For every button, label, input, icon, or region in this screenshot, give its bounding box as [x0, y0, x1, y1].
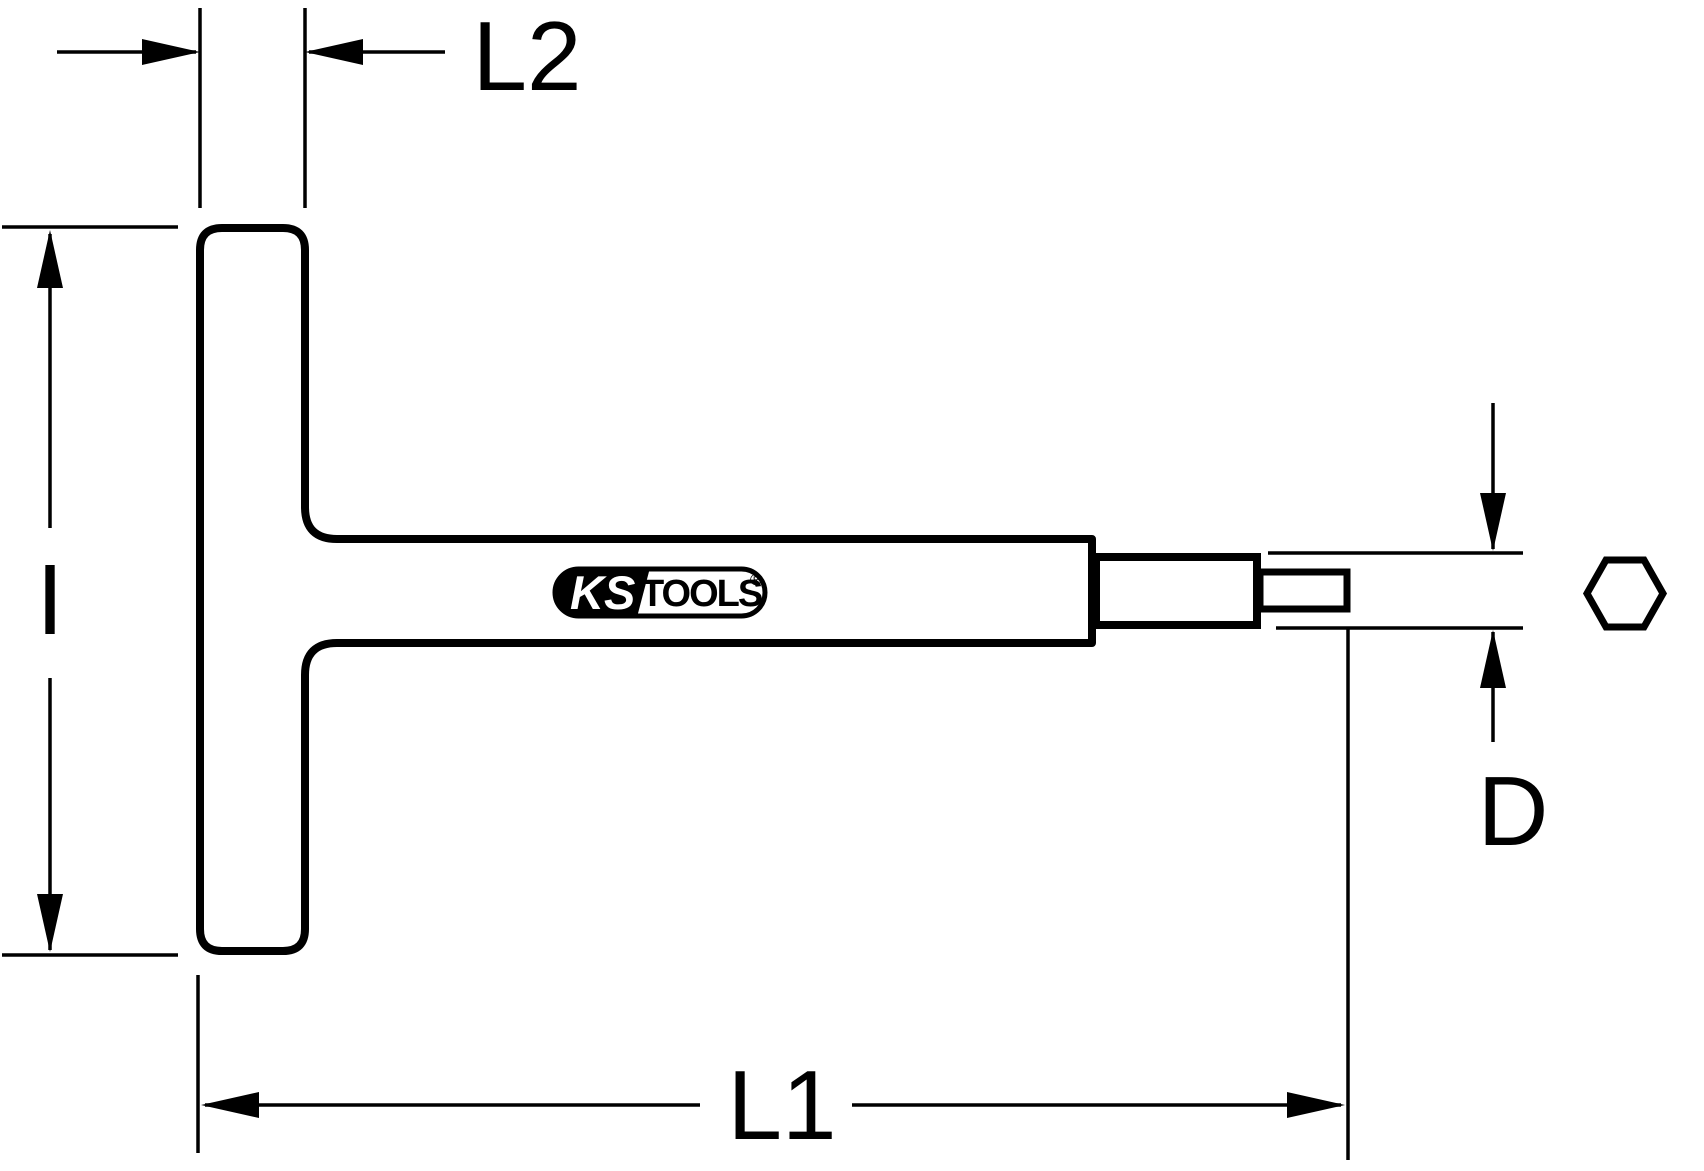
l1-arrowhead-right	[1287, 1092, 1345, 1118]
l2-arrowhead-right	[142, 39, 200, 65]
label-l1: L1	[727, 1050, 836, 1160]
wrench-sleeve-section	[1096, 557, 1257, 625]
dimension-i	[2, 227, 178, 955]
i-arrowhead-down	[37, 894, 63, 952]
technical-drawing-canvas: KS TOOLS ® L2 I	[0, 0, 1704, 1171]
l2-arrowhead-left	[305, 39, 363, 65]
ks-tools-logo: KS TOOLS ®	[550, 564, 765, 621]
label-i: I	[36, 544, 64, 656]
l1-arrowhead-left	[201, 1092, 259, 1118]
wrench-hex-tip	[1260, 572, 1347, 609]
logo-tools-text: TOOLS	[641, 573, 762, 615]
dimension-l2	[57, 8, 445, 208]
label-d: D	[1478, 756, 1549, 866]
d-arrowhead-down	[1480, 493, 1506, 551]
hexagon-cross-section-icon	[1587, 560, 1663, 627]
logo-ks-text: KS	[570, 566, 635, 619]
i-arrowhead-up	[37, 230, 63, 288]
d-arrowhead-up	[1480, 630, 1506, 688]
t-handle-hex-wrench-diagram: KS TOOLS ® L2 I	[0, 0, 1704, 1171]
logo-registered-mark: ®	[750, 572, 762, 589]
label-l2: L2	[472, 1, 581, 111]
